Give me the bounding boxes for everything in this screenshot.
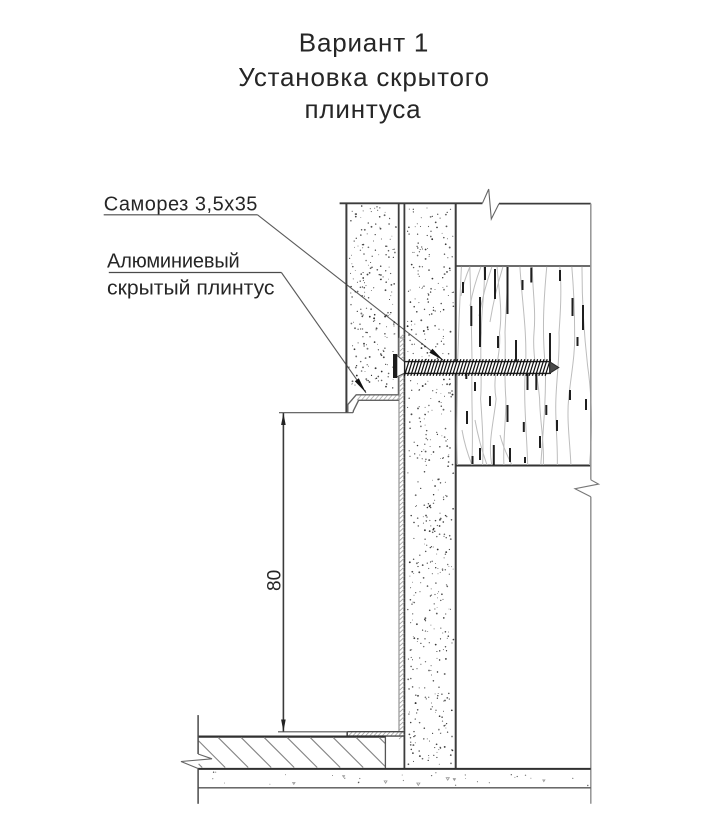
svg-text:Установка скрытого: Установка скрытого — [238, 62, 490, 92]
svg-text:скрытый плинтус: скрытый плинтус — [107, 277, 275, 299]
svg-text:80: 80 — [265, 570, 286, 591]
svg-text:плинтуса: плинтуса — [305, 94, 422, 124]
svg-text:Вариант 1: Вариант 1 — [299, 28, 429, 58]
svg-text:Саморез 3,5х35: Саморез 3,5х35 — [104, 194, 258, 216]
svg-text:Алюминиевый: Алюминиевый — [107, 251, 240, 273]
